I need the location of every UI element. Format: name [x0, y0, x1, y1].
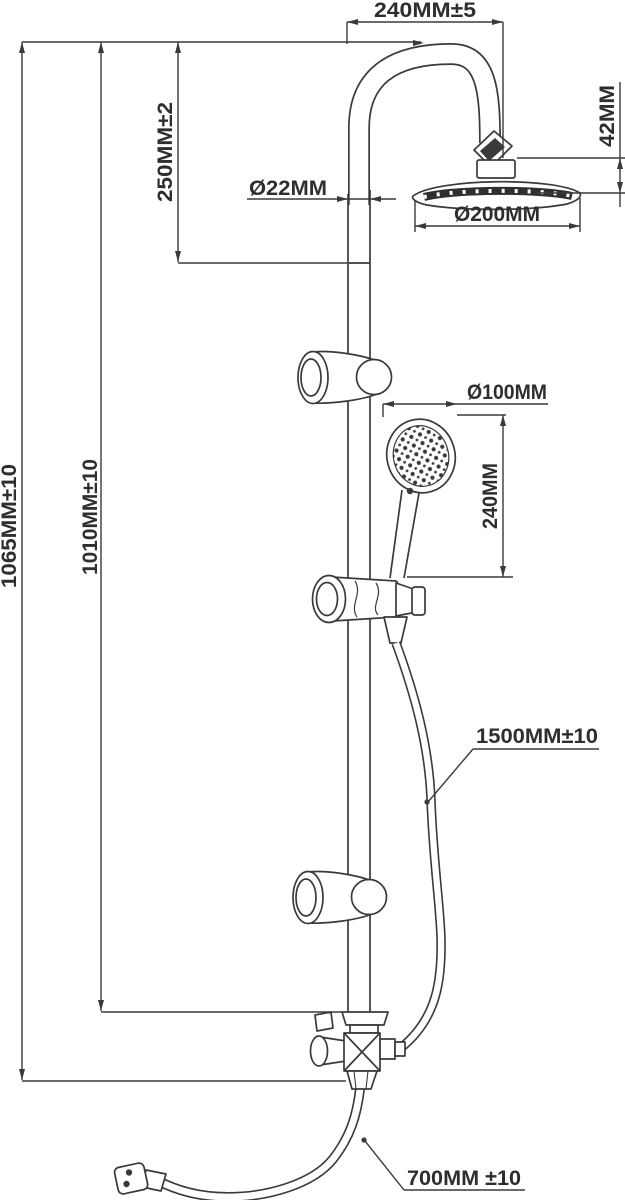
- valve-inlet-flange: [342, 1012, 388, 1025]
- leader-dot-1500: [424, 799, 429, 804]
- label-upper-pipe-length: 250MM±2: [154, 102, 177, 202]
- valve-bottom-nut: [347, 1071, 377, 1089]
- technical-drawing-canvas: 240MM±5 42MM 250MM±2 Ø22MM Ø200MM Ø100MM…: [0, 0, 625, 1200]
- label-riser-height: 1010MM±10: [79, 459, 102, 575]
- label-hand-shower-diameter: Ø100MM: [467, 381, 547, 404]
- valve-lever-cap: [311, 1036, 328, 1066]
- label-total-height: 1065MM±10: [0, 464, 21, 588]
- label-top-arm-reach: 240MM±5: [374, 0, 476, 22]
- label-head-drop: 42MM: [596, 85, 619, 147]
- label-inlet-hose-length: 700MM ±10: [407, 1167, 521, 1190]
- leader-dot-700: [361, 1137, 366, 1142]
- label-pipe-diameter: Ø22MM: [249, 177, 327, 200]
- shower-column-drawing: 240MM±5 42MM 250MM±2 Ø22MM Ø200MM Ø100MM…: [0, 0, 625, 1200]
- label-shower-hose-length: 1500MM±10: [476, 725, 598, 748]
- holder-socket: [412, 587, 425, 615]
- valve-outlet: [380, 1039, 395, 1059]
- hand-shower-pivot: [407, 488, 413, 494]
- label-hand-shower-length: 240MM: [479, 463, 502, 529]
- label-head-diameter: Ø200MM: [454, 203, 540, 226]
- head-connector-nut: [477, 160, 515, 178]
- valve-rear-tab: [315, 1012, 333, 1031]
